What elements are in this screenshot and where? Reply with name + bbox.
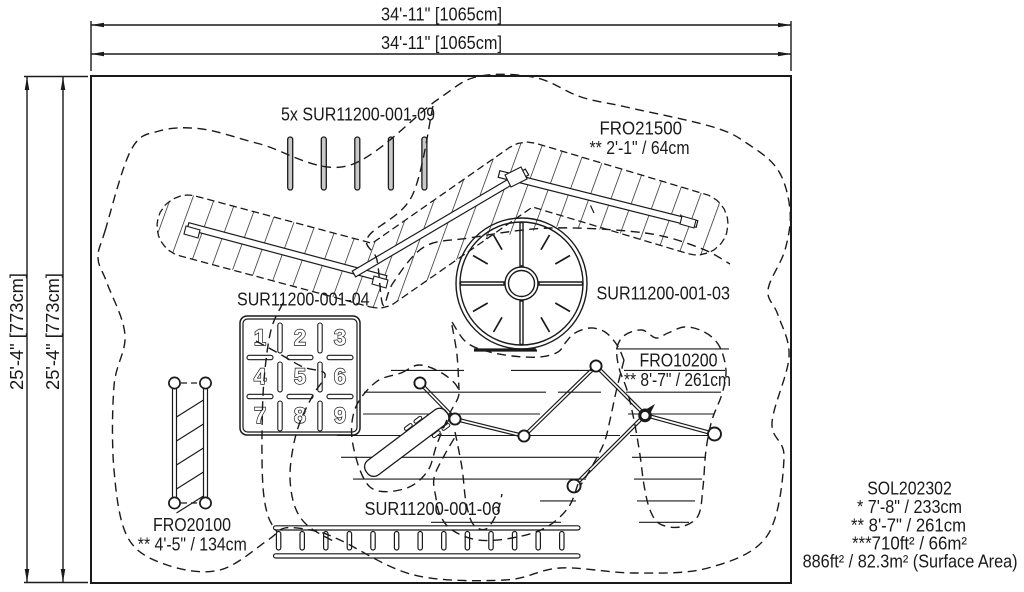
svg-text:* 7'-8" / 233cm: * 7'-8" / 233cm — [857, 497, 962, 517]
svg-text:34'-11" [1065cm]: 34'-11" [1065cm] — [381, 33, 502, 53]
svg-text:886ft² / 82.3m² (Surface Area): 886ft² / 82.3m² (Surface Area) — [803, 552, 1018, 572]
svg-text:***710ft² / 66m²: ***710ft² / 66m² — [852, 534, 967, 554]
svg-text:8: 8 — [294, 403, 306, 428]
svg-text:2: 2 — [294, 325, 306, 350]
svg-text:** 4'-5" / 134cm: ** 4'-5" / 134cm — [138, 535, 247, 555]
svg-text:3: 3 — [334, 325, 346, 350]
svg-text:** 8'-7" / 261cm: ** 8'-7" / 261cm — [624, 370, 731, 390]
svg-text:FRO20100: FRO20100 — [153, 515, 231, 535]
svg-text:34'-11" [1065cm]: 34'-11" [1065cm] — [381, 5, 502, 25]
svg-text:SUR11200-001-04: SUR11200-001-04 — [237, 290, 370, 310]
svg-text:SOL202302: SOL202302 — [867, 479, 952, 499]
svg-text:FRO10200: FRO10200 — [640, 351, 718, 371]
svg-text:** 8'-7" / 261cm: ** 8'-7" / 261cm — [851, 516, 966, 536]
svg-text:5: 5 — [294, 364, 306, 389]
svg-text:SUR11200-001-06: SUR11200-001-06 — [365, 499, 501, 519]
svg-text:25'-4" [773cm]: 25'-4" [773cm] — [7, 273, 27, 390]
svg-text:SUR11200-001-03: SUR11200-001-03 — [597, 284, 731, 304]
svg-text:** 2'-1" / 64cm: ** 2'-1" / 64cm — [590, 138, 690, 158]
svg-text:1: 1 — [254, 325, 266, 350]
svg-text:25'-4" [773cm]: 25'-4" [773cm] — [43, 273, 63, 390]
svg-text:FRO21500: FRO21500 — [600, 119, 683, 139]
svg-text:6: 6 — [334, 364, 346, 389]
svg-text:7: 7 — [254, 403, 266, 428]
svg-text:9: 9 — [334, 403, 346, 428]
